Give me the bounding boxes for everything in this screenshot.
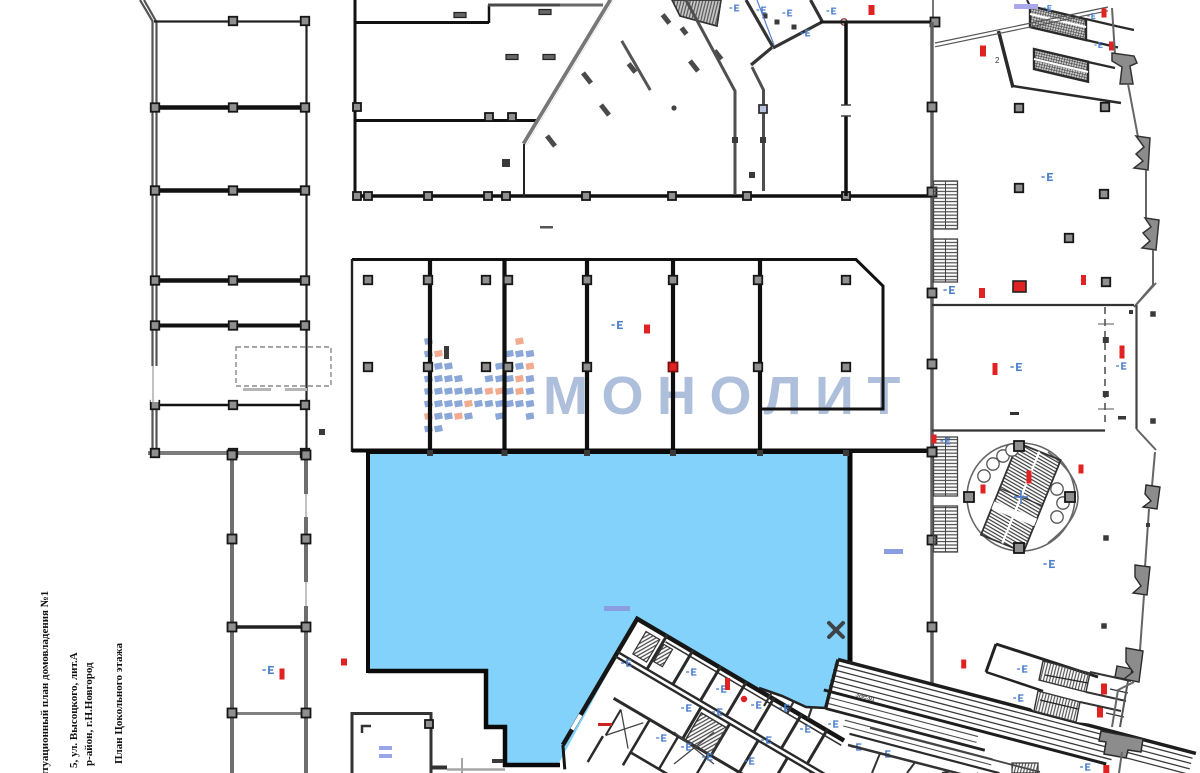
svg-text:р-айон, г.Н.Новгород: р-айон, г.Н.Новгород: [83, 662, 95, 766]
svg-text:5, ул. Высоцкого, лит.А: 5, ул. Высоцкого, лит.А: [68, 652, 80, 768]
svg-text:Ситуационный план домовладения: Ситуационный план домовладения №1: [39, 591, 51, 773]
svg-text:План Цокольного этажа: План Цокольного этажа: [113, 643, 125, 764]
svg-text:МОНОЛИТ: МОНОЛИТ: [543, 366, 914, 426]
svg-text:2: 2: [995, 56, 1000, 65]
